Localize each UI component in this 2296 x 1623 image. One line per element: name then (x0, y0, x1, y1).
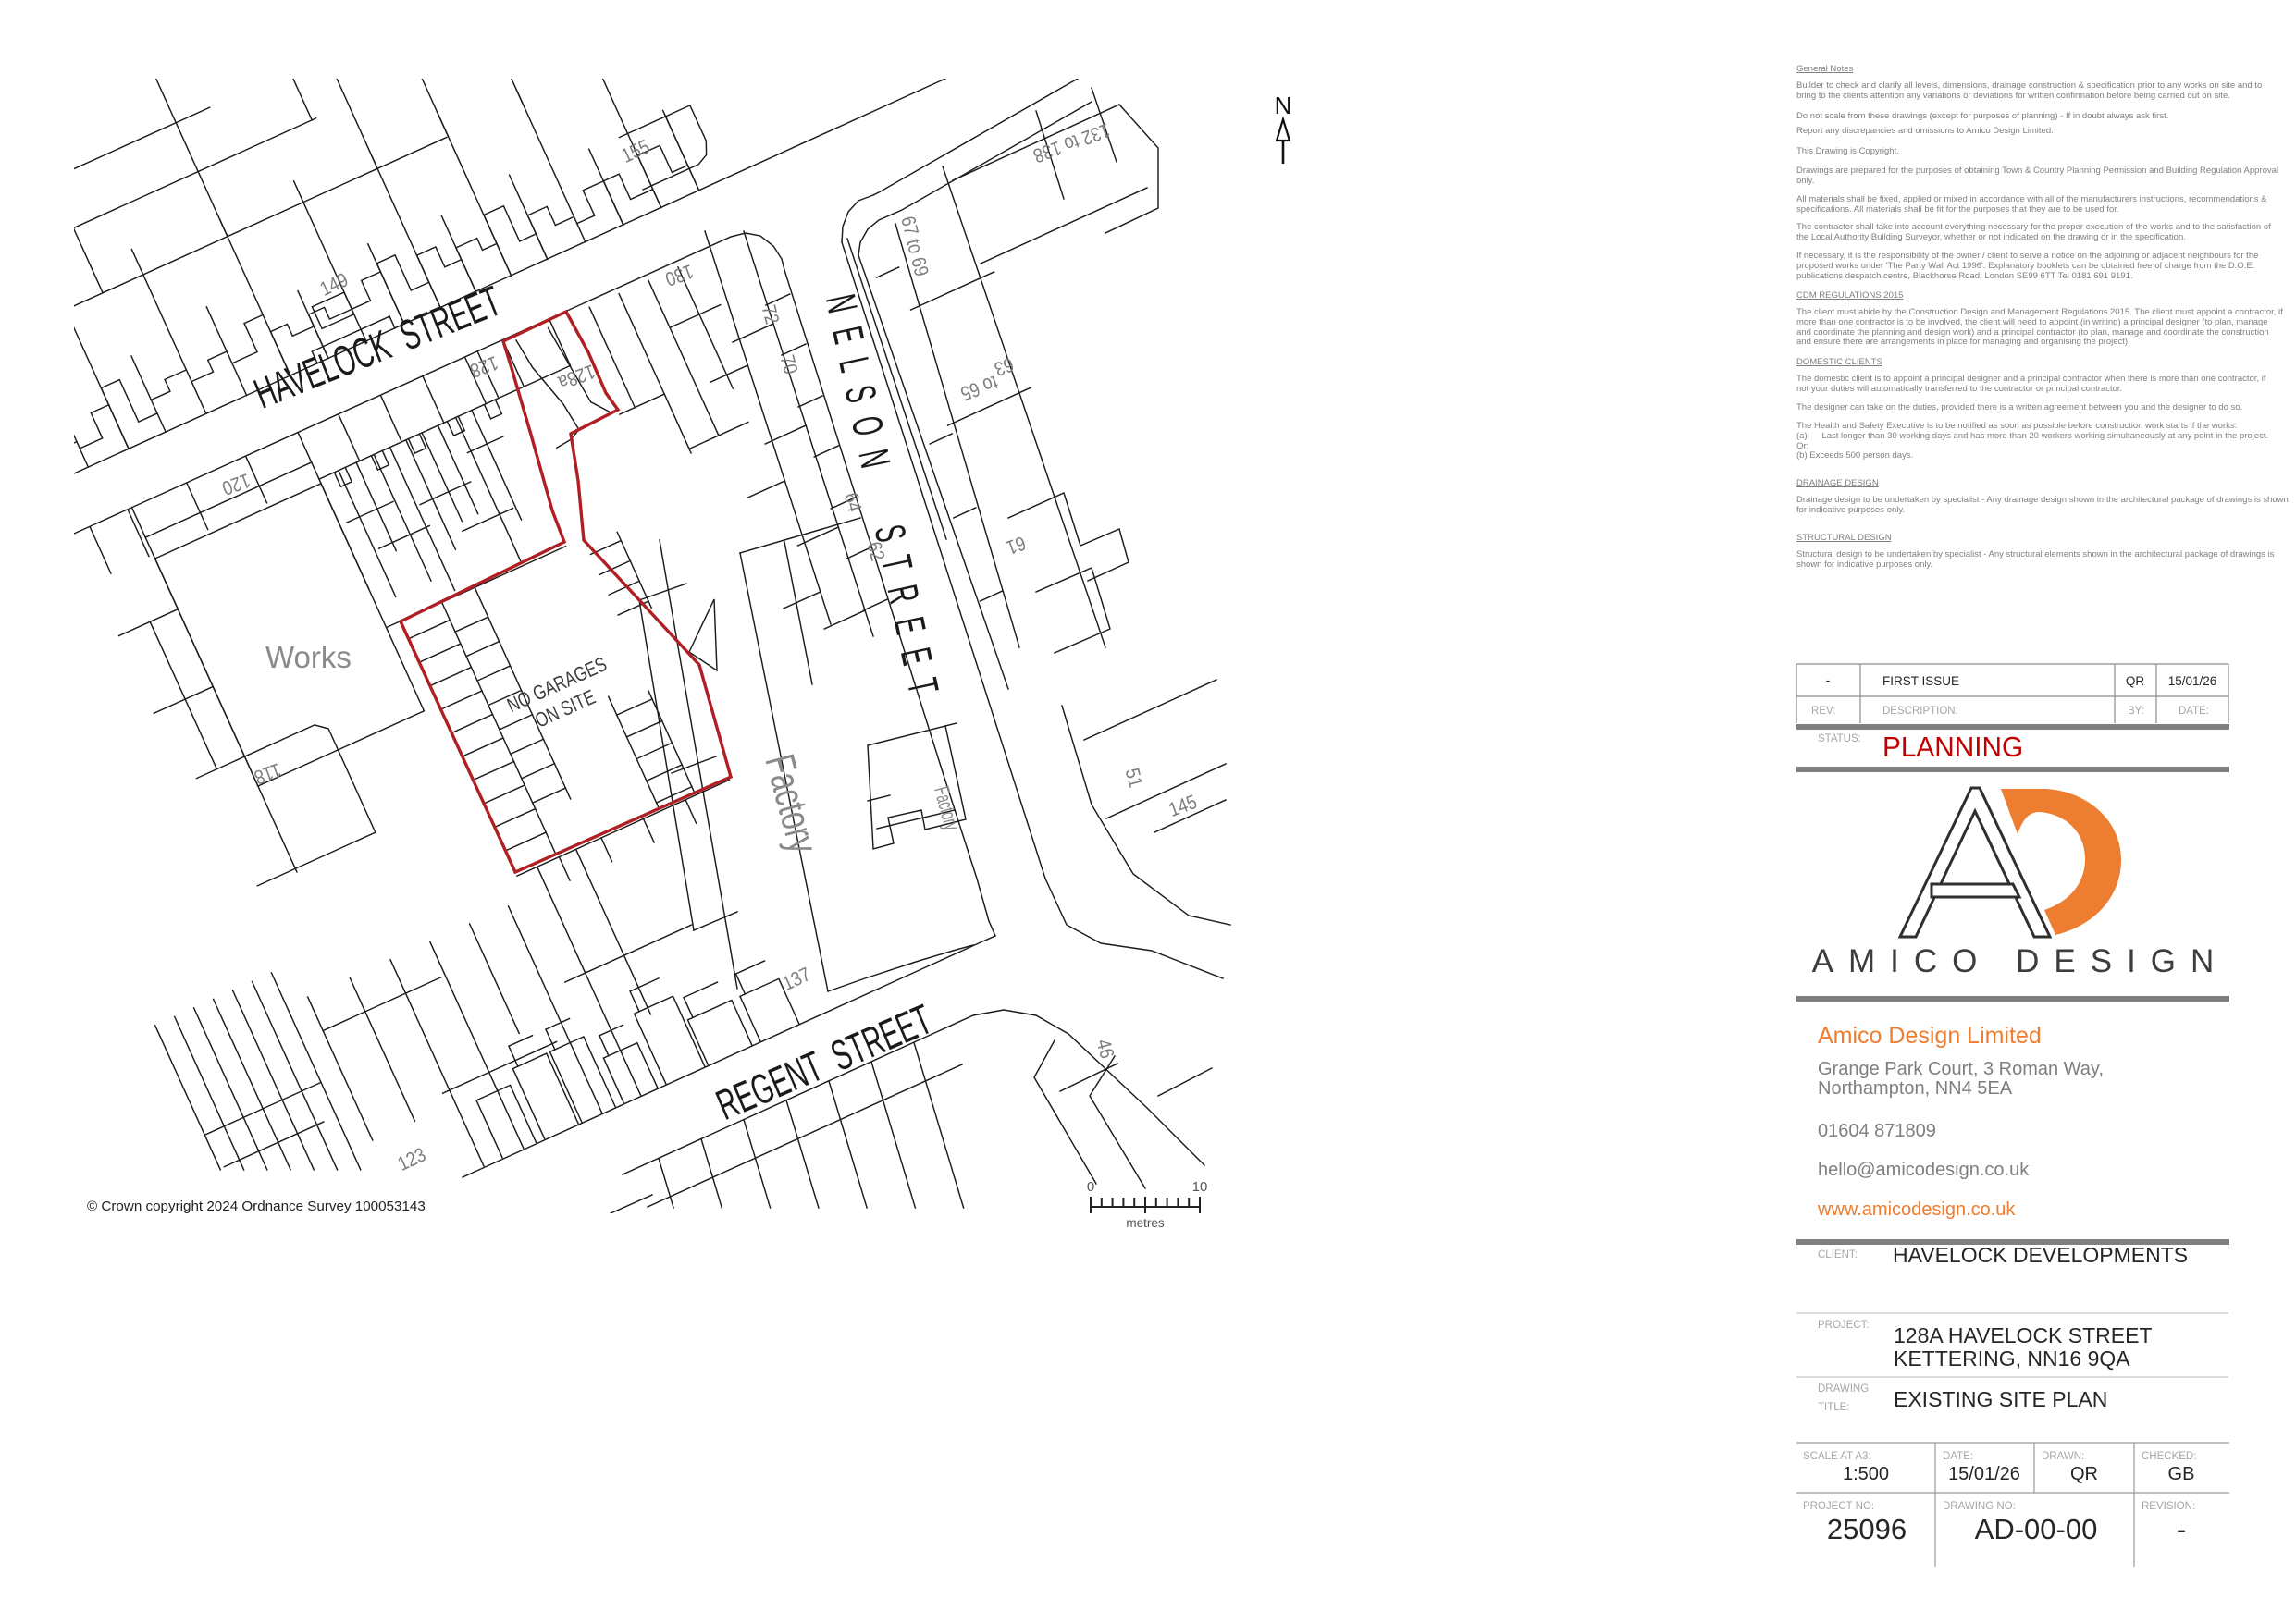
svg-text:01604 871809: 01604 871809 (1818, 1121, 1936, 1141)
svg-text:Grange Park Court, 3 Roman Way: Grange Park Court, 3 Roman Way, (1818, 1059, 2104, 1079)
svg-text:Northampton, NN4 5EA: Northampton, NN4 5EA (1818, 1078, 2013, 1099)
svg-text:DRAWING: DRAWING (1818, 1383, 1869, 1395)
svg-text:QR: QR (2126, 674, 2145, 688)
svg-text:QR: QR (2070, 1464, 2098, 1484)
svg-text:GB: GB (2168, 1464, 2195, 1484)
svg-text:CHECKED:: CHECKED: (2142, 1451, 2196, 1462)
svg-text:AD-00-00: AD-00-00 (1975, 1513, 2098, 1545)
svg-text:AMICO DESIGN: AMICO DESIGN (1812, 943, 2229, 979)
svg-text:PROJECT:: PROJECT: (1818, 1320, 1870, 1331)
svg-text:PLANNING: PLANNING (1882, 731, 2023, 763)
svg-text:DRAWING NO:: DRAWING NO: (1943, 1501, 2016, 1512)
svg-text:1:500: 1:500 (1843, 1464, 1889, 1484)
svg-text:25096: 25096 (1827, 1513, 1907, 1545)
svg-text:15/01/26: 15/01/26 (1948, 1464, 2020, 1484)
svg-text:-: - (2177, 1513, 2186, 1545)
svg-text:CLIENT:: CLIENT: (1818, 1249, 1858, 1260)
svg-text:REVISION:: REVISION: (2142, 1501, 2195, 1512)
svg-text:www.amicodesign.co.uk: www.amicodesign.co.uk (1817, 1199, 2016, 1220)
svg-text:TITLE:: TITLE: (1818, 1402, 1850, 1413)
svg-text:FIRST ISSUE: FIRST ISSUE (1882, 674, 1959, 688)
svg-text:KETTERING, NN16 9QA: KETTERING, NN16 9QA (1894, 1346, 2130, 1371)
svg-text:REV:: REV: (1811, 706, 1835, 717)
svg-text:128A HAVELOCK STREET: 128A HAVELOCK STREET (1894, 1323, 2153, 1347)
svg-text:EXISTING SITE PLAN: EXISTING SITE PLAN (1894, 1387, 2107, 1411)
svg-text:DRAWN:: DRAWN: (2042, 1451, 2084, 1462)
svg-text:SCALE AT A3:: SCALE AT A3: (1803, 1451, 1871, 1462)
svg-text:DESCRIPTION:: DESCRIPTION: (1882, 706, 1958, 717)
svg-text:HAVELOCK DEVELOPMENTS: HAVELOCK DEVELOPMENTS (1893, 1243, 2188, 1267)
svg-text:BY:: BY: (2128, 706, 2144, 717)
svg-text:Amico Design Limited: Amico Design Limited (1818, 1023, 2042, 1049)
svg-text:DATE:: DATE: (2179, 706, 2209, 717)
svg-text:DATE:: DATE: (1943, 1451, 1973, 1462)
svg-text:-: - (1826, 673, 1831, 687)
svg-text:15/01/26: 15/01/26 (2168, 674, 2217, 688)
svg-text:hello@amicodesign.co.uk: hello@amicodesign.co.uk (1818, 1160, 2030, 1180)
svg-text:STATUS:: STATUS: (1818, 733, 1861, 744)
svg-text:PROJECT NO:: PROJECT NO: (1803, 1501, 1874, 1512)
